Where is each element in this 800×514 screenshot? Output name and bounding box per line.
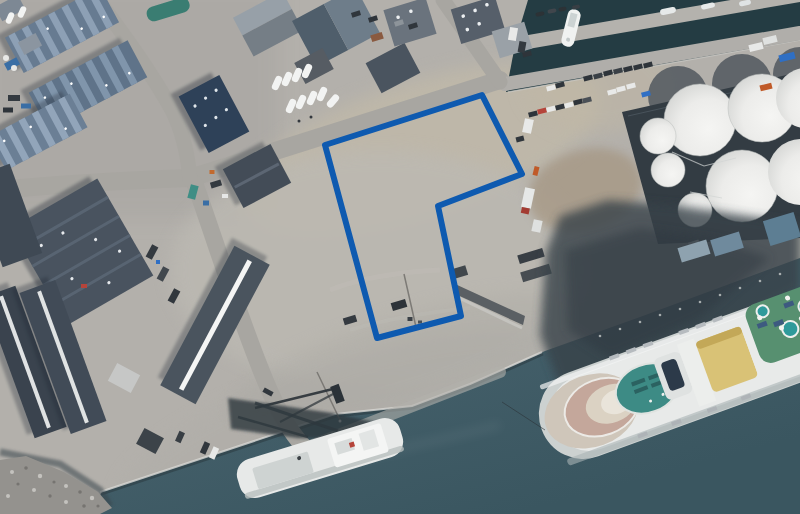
- storage-tank: [651, 153, 685, 187]
- storage-tank: [664, 84, 736, 156]
- storage-tank: [706, 150, 778, 222]
- car: [418, 321, 422, 324]
- storage-tank: [640, 118, 676, 154]
- aerial-photo: [0, 0, 800, 514]
- car: [408, 317, 413, 321]
- harbor-orthophoto: [0, 0, 800, 514]
